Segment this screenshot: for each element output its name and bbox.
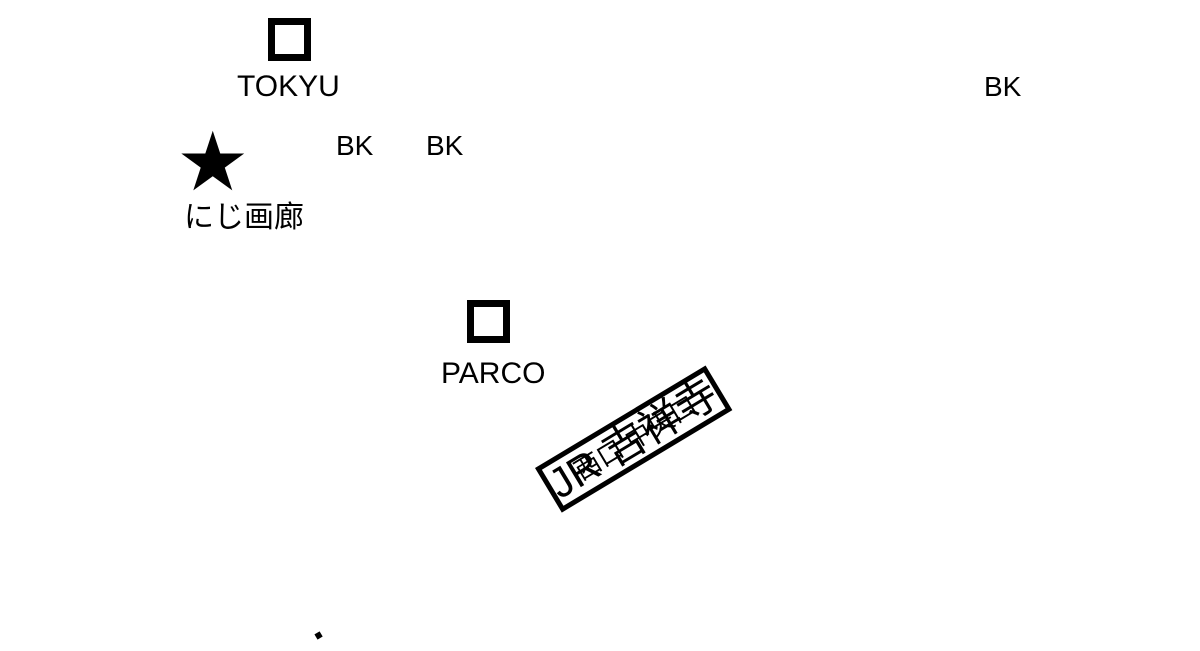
parco-building-icon bbox=[467, 300, 510, 343]
bank-label-2: BK bbox=[426, 132, 463, 160]
bank-label-1: BK bbox=[336, 132, 373, 160]
tokyu-label: TOKYU bbox=[237, 72, 340, 102]
railway-track-icon bbox=[314, 631, 322, 639]
station-building: 西口 JR 吉祥寺 中央口 bbox=[535, 365, 732, 512]
gallery-star-icon: ★ bbox=[176, 126, 250, 200]
parco-label: PARCO bbox=[441, 359, 545, 389]
bank-label-3: BK bbox=[984, 73, 1021, 101]
tokyu-building-icon bbox=[268, 18, 311, 61]
access-map: 西口 JR 吉祥寺 中央口 TOKYU PARCO BK BK BK ★ にじ画… bbox=[0, 0, 1200, 651]
gallery-name-label: にじ画廊 bbox=[184, 203, 304, 233]
